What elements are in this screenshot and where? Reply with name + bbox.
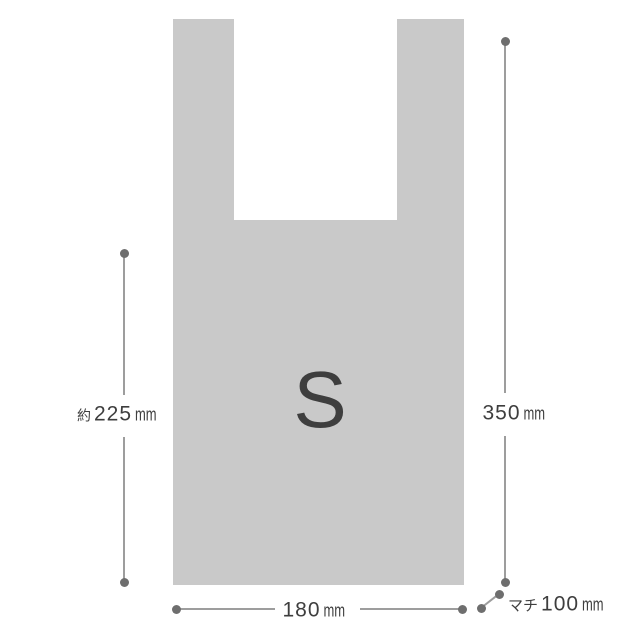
approx-prefix: 約 [77,408,91,424]
left-height-label: 約225mm [77,404,165,425]
right-height-label: 350mm [482,403,553,424]
gusset-dimension-upper-dot [495,590,504,599]
gusset-value: 100 [541,593,579,616]
gusset-dimension-lower-dot [477,604,486,613]
right-dimension-top-dot [501,37,510,46]
right-height-unit: mm [524,405,546,423]
left-height-value: 225 [94,403,132,426]
gusset-label: マチ100mm [508,594,612,615]
left-dimension-bottom-dot [120,578,129,587]
right-dimension-bottom-dot [501,578,510,587]
bottom-dimension-left-dot [172,605,181,614]
bottom-width-value: 180 [282,599,320,622]
gusset-unit: mm [582,596,604,614]
left-dimension-line-upper [123,253,125,395]
right-height-value: 350 [482,402,520,425]
gusset-prefix: マチ [508,598,538,615]
bag-size-letter: S [293,360,346,440]
bottom-dimension-line-left [176,608,275,610]
bottom-width-label: 180mm [282,600,353,621]
bag-dimension-diagram: S 約225mm 350mm 180mm マチ100mm [0,0,640,640]
left-dimension-top-dot [120,249,129,258]
left-dimension-line-lower [123,437,125,582]
bottom-dimension-line-right [360,608,462,610]
bag-handle-cutout [234,19,397,220]
right-dimension-line-upper [504,41,506,393]
right-dimension-line-lower [504,436,506,582]
bottom-dimension-right-dot [458,605,467,614]
left-height-unit: mm [135,406,157,424]
bottom-width-unit: mm [324,602,346,620]
